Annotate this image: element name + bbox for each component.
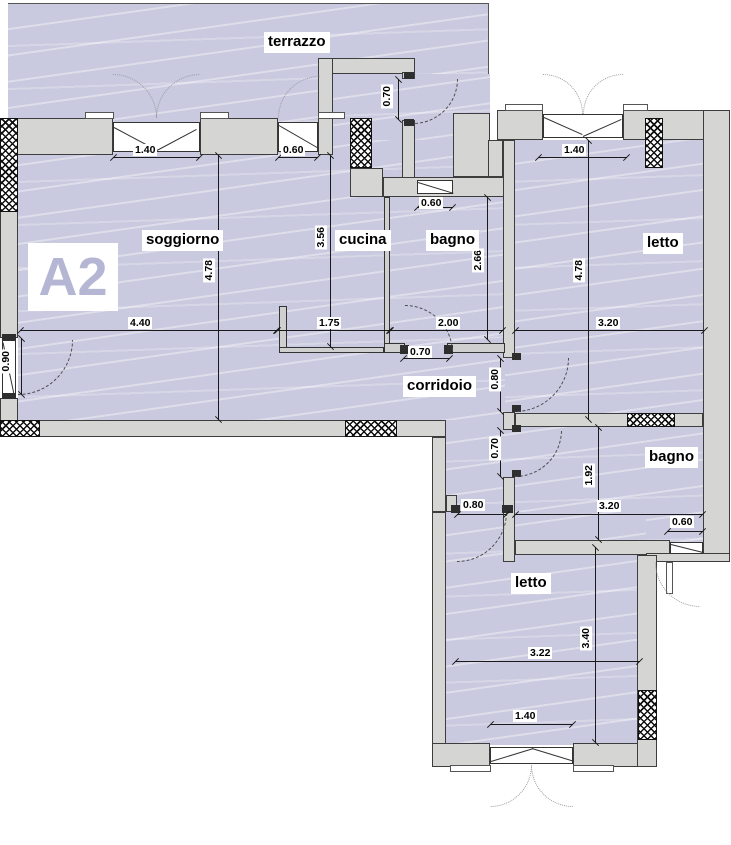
- room-label-terrazzo: terrazzo: [264, 32, 330, 53]
- corridor-left-wall: [432, 437, 446, 512]
- bedroom2-left-wall: [432, 512, 446, 747]
- vestibule-left-wall: [318, 58, 333, 155]
- dim-line-terrace-window: [113, 157, 200, 158]
- dim-bathroom1-window: 0.60: [419, 197, 443, 209]
- dim-bedroom2-window: 1.40: [513, 710, 537, 722]
- dim-line-entry-door: [398, 79, 399, 120]
- dim-line-bathroom2-window: [667, 531, 703, 532]
- dim-line-bathroom1-door: [403, 358, 450, 359]
- bathroom1-bottom-wall-right: [447, 343, 505, 353]
- dim-terrace-window2: 0.60: [281, 144, 305, 156]
- dim-line-cucina-width: [277, 330, 390, 331]
- bedroom2-bottom-wall-left: [432, 743, 490, 767]
- dim-line-bathroom2-width: [515, 514, 703, 515]
- dim-bedroom2-door: 0.80: [461, 499, 485, 511]
- right-wall: [703, 110, 730, 562]
- dim-bathroom2-height: 1.92: [583, 463, 595, 487]
- room-label-letto2: letto: [511, 573, 551, 594]
- sill-bedroom1-right: [623, 104, 648, 111]
- hatch-bedroom2-pier: [638, 690, 657, 740]
- dim-line-bedroom1-height: [588, 140, 589, 420]
- dim-bedroom1-door: 0.80: [489, 367, 501, 391]
- room-label-bagno2: bagno: [645, 447, 698, 468]
- sill-terrace-060: [318, 112, 345, 119]
- dim-line-terrace-window2: [278, 157, 318, 158]
- dim-soggiorno-height: 4.78: [203, 258, 215, 282]
- dim-line-bedroom2-height: [595, 547, 596, 743]
- hatch-kitchen-pier: [350, 118, 372, 168]
- dim-line-soggiorno-width: [20, 330, 277, 331]
- dim-line-bedroom2-door: [457, 514, 507, 515]
- sill-terrace-left: [85, 112, 114, 119]
- dim-cucina-height: 3.56: [315, 225, 327, 249]
- room-label-letto1: letto: [643, 233, 683, 254]
- bedroom1-window-140: [543, 114, 623, 138]
- room-label-bagno1: bagno: [426, 230, 479, 251]
- corner-block-wall: [453, 113, 490, 177]
- sill-terrace-right: [200, 112, 229, 119]
- dim-left-door: 0.90: [0, 349, 12, 373]
- spine-wall-sliver: [488, 140, 503, 177]
- entry-door-jamb-top: [404, 72, 414, 79]
- bedroom2-bottom-wall-right: [573, 743, 646, 767]
- dim-bedroom2-height: 3.40: [580, 626, 592, 650]
- sill-bedroom2-left: [450, 765, 491, 772]
- dim-bedroom1-window: 1.40: [562, 144, 586, 156]
- dim-bathroom1-height: 2.66: [472, 248, 484, 272]
- dim-entry-door: 0.70: [381, 84, 393, 108]
- left-wall-lower: [0, 398, 18, 422]
- dim-line-soggiorno-height: [218, 155, 219, 420]
- dim-cucina-width: 1.75: [317, 317, 341, 329]
- hatch-bathroom2-pier: [627, 413, 675, 427]
- vestibule-right-wall-lower: [402, 120, 415, 180]
- dim-line-bedroom1-width: [515, 330, 705, 331]
- unit-label: A2: [28, 243, 118, 311]
- dim-line-bedroom2-width: [455, 661, 640, 662]
- dim-bathroom2-width: 3.20: [597, 500, 621, 512]
- top-wall-mid: [200, 118, 278, 155]
- spine-wall-upper: [503, 140, 515, 358]
- hatch-bedroom1-pier: [645, 118, 663, 168]
- dim-line-bathroom1-height: [487, 197, 488, 340]
- left-door-jamb-bottom: [2, 393, 16, 399]
- dim-bedroom1-height: 4.78: [573, 258, 585, 282]
- dim-bedroom2-width: 3.22: [528, 647, 552, 659]
- bedroom1-top-wall-left: [497, 110, 543, 140]
- room-label-soggiorno: soggiorno: [142, 230, 223, 251]
- hatch-top-left-corner: [0, 118, 18, 212]
- dim-bathroom2-window: 0.60: [670, 516, 694, 528]
- entry-door-jamb-bottom: [404, 119, 414, 126]
- dim-soggiorno-width: 4.40: [128, 317, 152, 329]
- dim-line-bedroom1-window: [538, 157, 627, 158]
- dim-terrace-window: 1.40: [133, 144, 157, 156]
- room-label-corridoio: corridoio: [403, 376, 476, 397]
- left-door-jamb-top: [2, 334, 16, 340]
- bottom-right-step-wall: [646, 553, 730, 562]
- hatch-bottom-left: [0, 420, 40, 437]
- kitchen-corner-wall: [350, 168, 383, 197]
- hatch-bottom-living: [345, 420, 397, 437]
- dim-line-bedroom2-window: [490, 724, 573, 725]
- sill-bedroom1-left: [505, 104, 543, 111]
- dim-bathroom1-door: 0.70: [408, 346, 432, 358]
- dim-bathroom2-door: 0.70: [489, 436, 501, 460]
- room-label-cucina: cucina: [335, 230, 391, 251]
- dim-line-bathroom2-height: [598, 427, 599, 540]
- dim-bedroom1-width: 3.20: [596, 317, 620, 329]
- dim-line-left-door: [21, 338, 22, 395]
- sill-bedroom2-right: [573, 765, 614, 772]
- dim-bathroom1-width: 2.00: [436, 317, 460, 329]
- floor-plan: 1.40 0.60 1.40 0.60 4.40 1.75 2.00 3.20 …: [0, 0, 731, 845]
